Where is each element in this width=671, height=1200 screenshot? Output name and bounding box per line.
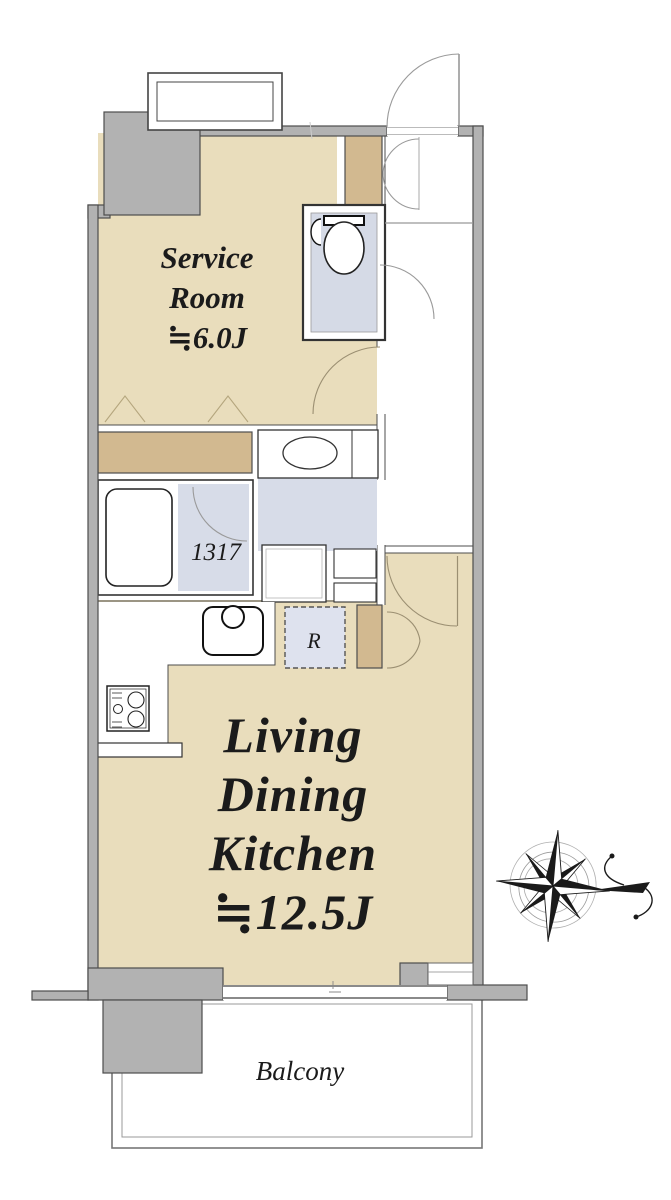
entrance bbox=[383, 54, 473, 223]
entrance-door-arc bbox=[387, 54, 459, 127]
toilet-door-arc bbox=[380, 265, 434, 319]
ldk-floor-upper bbox=[385, 553, 473, 608]
ldk-size: ≒12.5J bbox=[113, 883, 473, 942]
bottom-wall-left-block bbox=[88, 968, 223, 1000]
ldk-line1: Living bbox=[113, 706, 473, 765]
bathroom-size-label: 1317 bbox=[176, 538, 256, 568]
refrigerator-label: R bbox=[284, 628, 344, 654]
bottom-wall-right bbox=[447, 985, 527, 1000]
washroom bbox=[258, 430, 378, 602]
shoe-cabinet-door-arc-top bbox=[383, 139, 419, 175]
pillar-bottom-left bbox=[103, 1000, 202, 1073]
ldk-label: Living Dining Kitchen ≒12.5J bbox=[113, 706, 473, 942]
kitchen-pillar-strip bbox=[357, 605, 382, 668]
floor-plan-drawing bbox=[0, 0, 671, 1200]
washroom-floor bbox=[258, 477, 377, 551]
bottom-wall-small-block bbox=[400, 963, 428, 987]
left-wall-stub bbox=[32, 991, 88, 1000]
service-room-closet bbox=[98, 432, 252, 473]
washroom-cabinet-upper bbox=[334, 549, 376, 578]
ldk-floor-bottom-strip bbox=[223, 963, 400, 987]
wall-joint bbox=[337, 133, 345, 210]
north-arrow-ornament bbox=[594, 854, 652, 920]
kitchen-faucet-icon bbox=[222, 606, 244, 628]
ldk-line3: Kitchen bbox=[113, 824, 473, 883]
vanity-sink-icon bbox=[283, 437, 337, 469]
ldk-line2: Dining bbox=[113, 765, 473, 824]
washroom-cabinet-lower bbox=[334, 583, 376, 602]
entrance-shoe-closet bbox=[345, 133, 382, 210]
shoe-cabinet-door-arc-bottom bbox=[383, 173, 419, 209]
service-room-name-line2: Room bbox=[87, 278, 327, 318]
balcony-label: Balcony bbox=[200, 1056, 400, 1088]
toilet-bowl-icon bbox=[324, 222, 364, 274]
compass-rose-icon bbox=[491, 825, 614, 947]
service-room-size: ≒6.0J bbox=[87, 318, 327, 358]
service-room-label: Service Room ≒6.0J bbox=[87, 238, 327, 358]
bathtub-icon bbox=[106, 489, 172, 586]
bottom-alcove bbox=[428, 963, 473, 985]
service-room-name-line1: Service bbox=[87, 238, 327, 278]
floor-plan: Service Room ≒6.0J 1317 R Living Dining … bbox=[0, 0, 671, 1200]
right-wall bbox=[473, 126, 483, 1000]
washing-machine-pan-icon bbox=[262, 545, 326, 602]
